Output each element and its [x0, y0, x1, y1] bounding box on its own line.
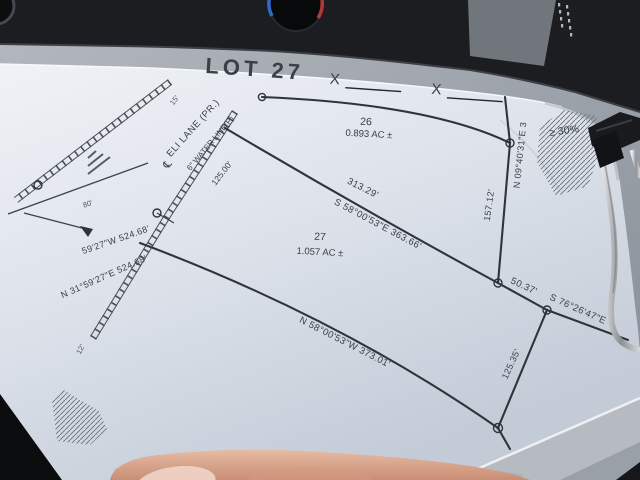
title-x1: X: [329, 71, 340, 89]
lot27-number: 27: [314, 231, 326, 244]
lot26-number: 26: [360, 116, 372, 129]
plat-scene: LOT 27 X X ℄ ELI LANE (PR.) 6" WATER LIN…: [0, 0, 640, 480]
title-x2: X: [431, 81, 442, 99]
dashboard-pillar: [468, 0, 556, 66]
survey-plat-photo: LOT 27 X X ℄ ELI LANE (PR.) 6" WATER LIN…: [0, 0, 640, 480]
